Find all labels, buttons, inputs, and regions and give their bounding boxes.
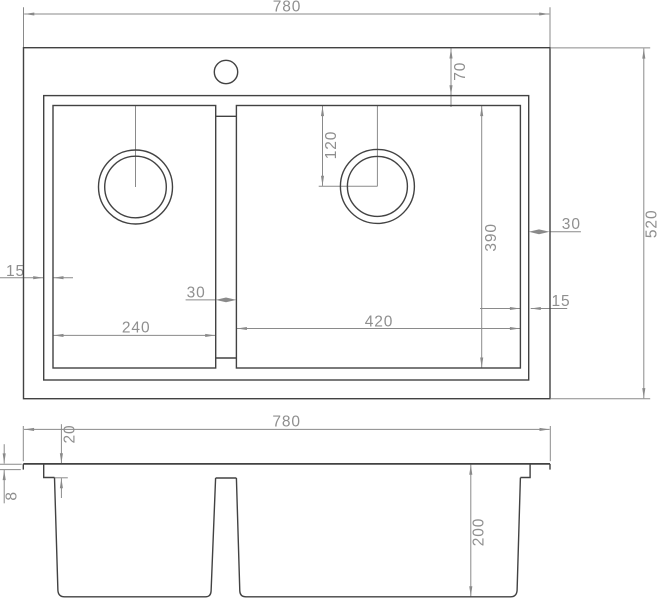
svg-text:240: 240 [122,320,151,337]
svg-text:420: 420 [365,313,394,330]
svg-text:120: 120 [323,131,340,160]
svg-text:520: 520 [643,210,660,239]
svg-text:390: 390 [483,223,500,252]
svg-text:200: 200 [471,518,488,547]
svg-text:30: 30 [562,216,581,233]
svg-text:30: 30 [187,285,206,302]
svg-text:15: 15 [6,263,25,280]
svg-text:70: 70 [452,62,469,81]
svg-text:20: 20 [62,424,79,443]
svg-text:15: 15 [552,293,571,310]
svg-text:780: 780 [272,413,301,430]
svg-text:8: 8 [4,491,21,501]
svg-text:780: 780 [273,0,302,16]
